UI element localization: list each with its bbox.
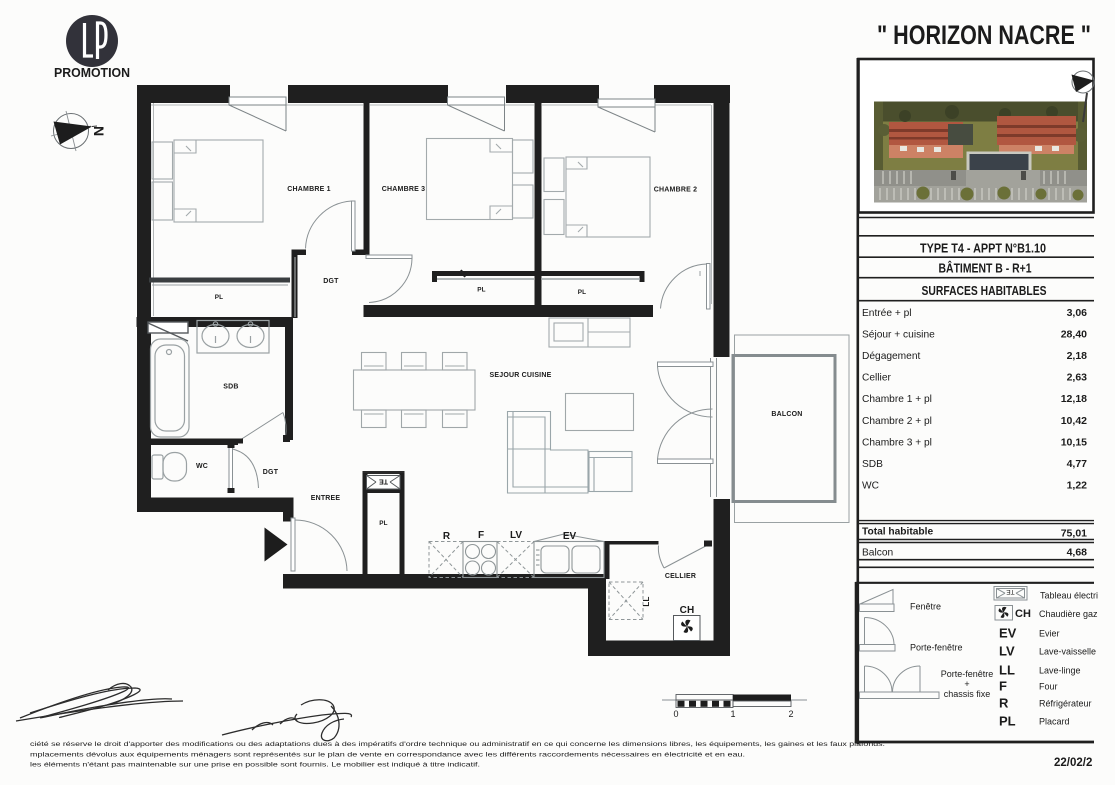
- svg-text:DGT: DGT: [323, 278, 339, 285]
- svg-text:mplacements dévolus aux équipe: mplacements dévolus aux équipements ména…: [30, 752, 745, 759]
- svg-text:R: R: [443, 531, 451, 542]
- svg-text:CH: CH: [1015, 608, 1031, 620]
- svg-text:SEJOUR CUISINE: SEJOUR CUISINE: [490, 372, 552, 379]
- svg-text:LL: LL: [642, 596, 651, 606]
- svg-text:PL: PL: [999, 714, 1016, 729]
- svg-text:PROMOTION: PROMOTION: [54, 66, 130, 80]
- svg-text:TE: TE: [379, 478, 388, 485]
- svg-text:10,15: 10,15: [1061, 436, 1087, 448]
- svg-text:Porte-fenêtre: Porte-fenêtre: [910, 643, 963, 653]
- svg-text:Balcon: Balcon: [862, 548, 893, 559]
- svg-text:Chambre 3 + pl: Chambre 3 + pl: [862, 437, 932, 448]
- svg-text:4,68: 4,68: [1067, 547, 1088, 559]
- svg-text:CHAMBRE 2: CHAMBRE 2: [654, 187, 697, 194]
- svg-text:Cellier: Cellier: [862, 373, 891, 384]
- svg-text:CELLIER: CELLIER: [665, 573, 696, 580]
- svg-text:chassis fixe: chassis fixe: [944, 689, 991, 699]
- svg-text:Four: Four: [1039, 682, 1058, 692]
- svg-text:10,42: 10,42: [1061, 415, 1087, 427]
- svg-text:PL: PL: [477, 287, 486, 294]
- svg-text:SDB: SDB: [862, 459, 883, 470]
- svg-text:4,77: 4,77: [1067, 458, 1088, 470]
- svg-text:F: F: [478, 530, 484, 541]
- svg-text:EV: EV: [999, 626, 1017, 641]
- svg-text:PL: PL: [578, 289, 587, 296]
- svg-text:SDB: SDB: [223, 384, 238, 391]
- svg-text:les éléments n'étant pas maint: les éléments n'étant pas maintenable sur…: [30, 762, 480, 769]
- svg-text:Tableau électri: Tableau électri: [1040, 591, 1098, 601]
- svg-text:ENTREE: ENTREE: [311, 495, 341, 502]
- svg-text:2: 2: [788, 709, 793, 719]
- svg-text:2,18: 2,18: [1067, 350, 1088, 362]
- svg-text:Placard: Placard: [1039, 717, 1070, 727]
- svg-text:Chaudière gaz: Chaudière gaz: [1039, 609, 1098, 619]
- svg-text:12,18: 12,18: [1061, 393, 1087, 405]
- svg-text:Fenêtre: Fenêtre: [910, 602, 941, 612]
- svg-text:N: N: [91, 126, 107, 136]
- svg-text:WC: WC: [862, 481, 879, 492]
- svg-text:Réfrigérateur: Réfrigérateur: [1039, 699, 1092, 709]
- svg-text:PL: PL: [215, 294, 224, 301]
- svg-text:Porte-fenêtre: Porte-fenêtre: [941, 669, 994, 679]
- svg-text:Lave-vaisselle: Lave-vaisselle: [1039, 647, 1096, 657]
- svg-text:EV: EV: [563, 531, 577, 542]
- svg-text:0: 0: [673, 709, 678, 719]
- svg-text:CH: CH: [680, 605, 695, 616]
- svg-text:BÂTIMENT B - R+1: BÂTIMENT B - R+1: [939, 261, 1032, 276]
- svg-text:Lave-linge: Lave-linge: [1039, 666, 1081, 676]
- svg-text:Séjour + cuisine: Séjour + cuisine: [862, 329, 935, 340]
- svg-text:CHAMBRE 3: CHAMBRE 3: [382, 186, 425, 193]
- svg-text:LL: LL: [999, 663, 1015, 678]
- svg-text:LV: LV: [999, 644, 1015, 659]
- svg-text:Chambre 1 + pl: Chambre 1 + pl: [862, 394, 932, 405]
- svg-text:DGT: DGT: [263, 469, 279, 476]
- svg-text:PL: PL: [379, 520, 388, 527]
- svg-text:1,22: 1,22: [1067, 480, 1088, 492]
- svg-text:+: +: [964, 679, 969, 689]
- svg-text:ciété se réserve le droit d'ap: ciété se réserve le droit d'apporter des…: [30, 741, 885, 748]
- svg-text:28,40: 28,40: [1061, 328, 1087, 340]
- svg-text:CHAMBRE 1: CHAMBRE 1: [287, 186, 330, 193]
- svg-text:Chambre 2 + pl: Chambre 2 + pl: [862, 416, 932, 427]
- svg-text:TE: TE: [1006, 588, 1015, 595]
- svg-text:Dégagement: Dégagement: [862, 351, 921, 362]
- svg-text:Total habitable: Total habitable: [862, 526, 933, 537]
- svg-text:WC: WC: [196, 463, 208, 470]
- svg-text:Entrée + pl: Entrée + pl: [862, 308, 912, 319]
- svg-text:Evier: Evier: [1039, 629, 1060, 639]
- svg-text:R: R: [999, 696, 1009, 711]
- svg-text:3,06: 3,06: [1067, 307, 1088, 319]
- svg-text:F: F: [999, 679, 1007, 694]
- svg-text:BALCON: BALCON: [771, 411, 802, 418]
- svg-text:TYPE T4 - APPT N°B1.10: TYPE T4 - APPT N°B1.10: [920, 241, 1046, 256]
- svg-text:" HORIZON NACRE ": " HORIZON NACRE ": [877, 20, 1091, 50]
- svg-text:22/02/2: 22/02/2: [1054, 757, 1092, 769]
- svg-text:LV: LV: [510, 530, 522, 541]
- svg-text:1: 1: [730, 709, 735, 719]
- svg-text:75,01: 75,01: [1061, 528, 1087, 540]
- svg-text:2,63: 2,63: [1067, 372, 1088, 384]
- svg-text:SURFACES HABITABLES: SURFACES HABITABLES: [922, 283, 1047, 298]
